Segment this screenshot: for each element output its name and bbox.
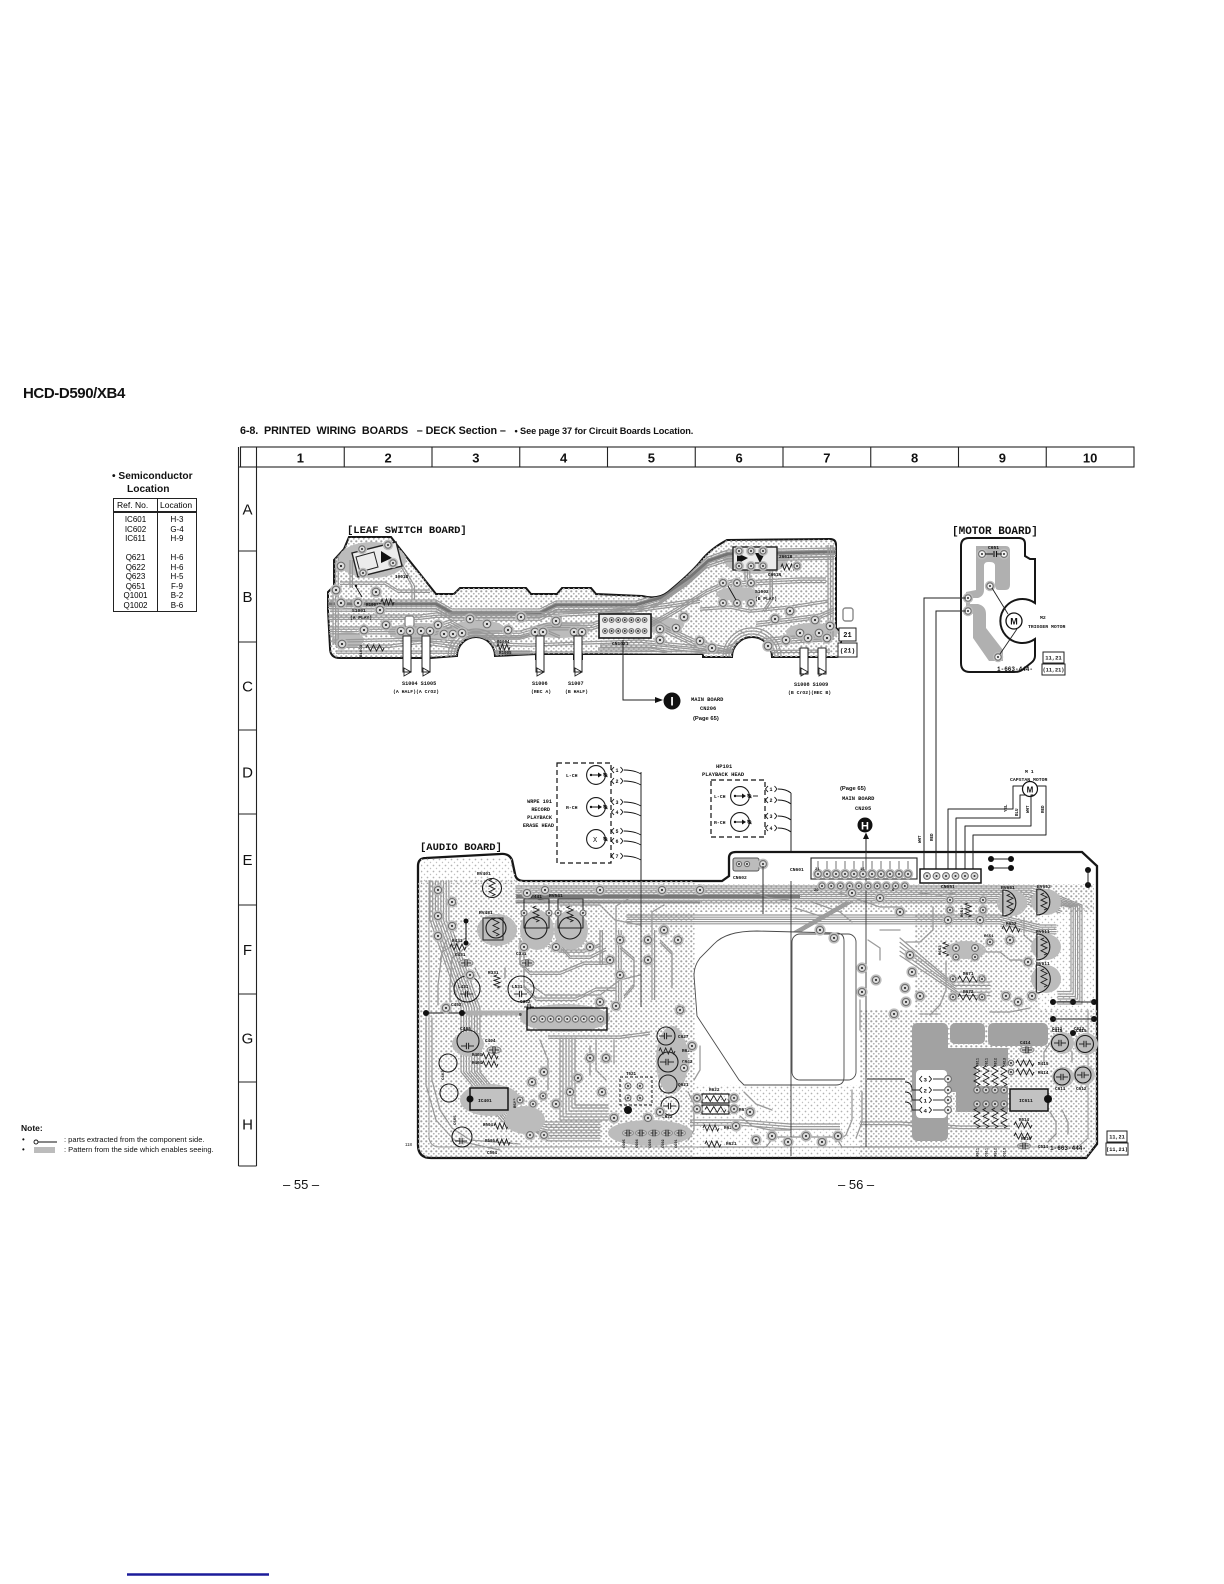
- svg-text:R504: R504: [483, 1124, 494, 1128]
- svg-text:8: 8: [911, 451, 918, 466]
- svg-text:RV541: RV541: [549, 893, 563, 899]
- svg-text:H: H: [861, 821, 869, 833]
- svg-text:T621: T621: [626, 1073, 637, 1077]
- svg-text:C415: C415: [1052, 1029, 1063, 1034]
- svg-text:11,21: 11,21: [1109, 1134, 1125, 1140]
- svg-text:C612: C612: [1076, 1087, 1087, 1092]
- svg-text:21: 21: [815, 868, 820, 872]
- svg-text:S1007: S1007: [568, 681, 584, 687]
- svg-text:M: M: [1010, 617, 1018, 627]
- svg-text:R622: R622: [709, 1088, 720, 1093]
- svg-text:CN651: CN651: [941, 884, 955, 890]
- svg-text:H: H: [242, 1117, 253, 1134]
- svg-text:G: G: [242, 1031, 254, 1048]
- svg-text:C404: C404: [485, 1039, 496, 1044]
- svg-text:(A PLAY): (A PLAY): [350, 615, 372, 621]
- svg-text:L431: L431: [458, 985, 469, 990]
- svg-text:R331: R331: [488, 971, 499, 976]
- svg-text:M2: M2: [1040, 615, 1046, 621]
- svg-text:C413: C413: [1004, 1058, 1008, 1067]
- svg-text:2: 2: [770, 798, 773, 804]
- svg-text:BLU: BLU: [1016, 808, 1020, 816]
- svg-text:1: 1: [297, 451, 304, 466]
- svg-text:R612: R612: [995, 1058, 999, 1067]
- svg-text:C603: C603: [649, 1139, 653, 1148]
- svg-text:HP101: HP101: [716, 764, 732, 770]
- svg-text:3: 3: [924, 1076, 928, 1083]
- svg-text:5: 5: [616, 829, 619, 835]
- svg-text:21: 21: [843, 632, 851, 640]
- svg-text:10: 10: [1083, 451, 1097, 466]
- svg-text:(B HALF): (B HALF): [565, 689, 588, 695]
- svg-text:M: M: [1027, 786, 1034, 795]
- svg-text:(Page 65): (Page 65): [840, 786, 866, 792]
- svg-text:C627: C627: [678, 1035, 689, 1040]
- svg-text:11,21: 11,21: [1045, 654, 1062, 661]
- svg-text:Q621: Q621: [678, 1083, 689, 1088]
- svg-text:A: A: [242, 502, 252, 519]
- svg-text:C504: C504: [487, 1152, 498, 1156]
- svg-text:RED: RED: [1042, 805, 1046, 813]
- svg-text:CN1021: CN1021: [612, 641, 629, 647]
- svg-text:R431: R431: [452, 939, 463, 944]
- svg-text:C611: C611: [986, 1058, 990, 1067]
- svg-text:(REC A): (REC A): [531, 689, 551, 695]
- svg-text:WHT: WHT: [1027, 805, 1031, 813]
- svg-text:S1008 S1009: S1008 S1009: [794, 682, 828, 688]
- svg-text:L-CH: L-CH: [714, 794, 726, 800]
- svg-text:1-663-444-: 1-663-444-: [1050, 1145, 1086, 1152]
- svg-text:9: 9: [519, 1012, 522, 1018]
- svg-text:2: 2: [924, 1087, 928, 1094]
- svg-text:C431: C431: [455, 953, 466, 958]
- svg-text:(11,21): (11,21): [1106, 1147, 1128, 1153]
- svg-text:R-CH: R-CH: [714, 820, 726, 826]
- svg-text:R621: R621: [726, 1142, 737, 1147]
- svg-text:C651: C651: [988, 545, 999, 551]
- svg-text:S1004 S1005: S1004 S1005: [402, 681, 436, 687]
- svg-text:[AUDIO BOARD]: [AUDIO BOARD]: [420, 842, 502, 854]
- svg-text:6: 6: [736, 451, 743, 466]
- svg-text:(A HALF)(A CrO2): (A HALF)(A CrO2): [393, 689, 439, 695]
- svg-text:WHT: WHT: [919, 835, 923, 843]
- svg-text:C514: C514: [1038, 1146, 1049, 1150]
- svg-text:I: I: [670, 695, 673, 709]
- svg-text:R1003: R1003: [360, 644, 364, 657]
- svg-text:R611: R611: [977, 1058, 981, 1067]
- svg-text:1: 1: [924, 1097, 928, 1104]
- svg-text:MAIN BOARD: MAIN BOARD: [691, 697, 724, 703]
- svg-text:F: F: [243, 942, 252, 959]
- svg-text:R403: R403: [472, 1054, 483, 1058]
- svg-text:3: 3: [770, 814, 773, 820]
- svg-text:C405: C405: [460, 1026, 471, 1032]
- svg-text:RV401: RV401: [477, 871, 491, 877]
- svg-text:C605: C605: [623, 1139, 627, 1148]
- svg-text:C403: C403: [442, 1070, 446, 1080]
- svg-text:C604: C604: [636, 1139, 640, 1148]
- svg-text:C414: C414: [1020, 1041, 1031, 1046]
- svg-text:C611: C611: [1055, 1087, 1066, 1092]
- svg-text:YEL: YEL: [1005, 804, 1009, 812]
- svg-text:CN205: CN205: [855, 806, 871, 812]
- svg-text:4: 4: [770, 826, 773, 832]
- svg-text:[MOTOR BOARD]: [MOTOR BOARD]: [952, 526, 1038, 538]
- svg-text:R1005: R1005: [499, 652, 512, 656]
- svg-text:D: D: [242, 765, 253, 782]
- svg-text:IC401: IC401: [478, 1098, 492, 1104]
- svg-text:C332: C332: [520, 1000, 531, 1005]
- svg-text:E: E: [242, 852, 252, 869]
- svg-text:R511: R511: [977, 1148, 981, 1157]
- svg-text:C602: C602: [662, 1139, 666, 1148]
- svg-text:RED: RED: [931, 833, 935, 841]
- svg-text:6: 6: [616, 839, 619, 845]
- svg-text:C331: C331: [516, 952, 527, 957]
- svg-text:S1002: S1002: [755, 589, 769, 595]
- svg-text:ERASE HEAD: ERASE HEAD: [523, 823, 554, 829]
- svg-text:15: 15: [860, 868, 865, 872]
- svg-text:IC611: IC611: [1019, 1098, 1033, 1104]
- svg-text:4: 4: [560, 451, 568, 466]
- svg-text:MAIN BOARD: MAIN BOARD: [842, 796, 875, 802]
- svg-text:C505: C505: [454, 1115, 458, 1125]
- svg-text:RECORD: RECORD: [531, 807, 550, 813]
- svg-text:1-663-444-: 1-663-444-: [997, 666, 1033, 673]
- svg-text:2: 2: [616, 779, 619, 785]
- svg-text:TRIGGER MOTOR: TRIGGER MOTOR: [1028, 624, 1066, 630]
- svg-text:(11,21): (11,21): [1043, 667, 1065, 673]
- svg-text:1: 1: [616, 768, 619, 774]
- svg-text:C601: C601: [675, 1139, 679, 1148]
- svg-text:R671: R671: [963, 972, 974, 977]
- svg-text:M 1: M 1: [1025, 769, 1034, 775]
- svg-text:L-CH: L-CH: [566, 773, 578, 779]
- svg-text:3: 3: [472, 451, 479, 466]
- svg-text:WRPE 101: WRPE 101: [527, 799, 552, 805]
- svg-text:4: 4: [924, 1107, 928, 1114]
- svg-text:PLAYBACK HEAD: PLAYBACK HEAD: [702, 772, 745, 778]
- svg-text:4: 4: [616, 810, 619, 816]
- svg-text:(21): (21): [840, 647, 856, 654]
- svg-text:(B CrO2)(REC B): (B CrO2)(REC B): [788, 690, 831, 696]
- svg-text:[LEAF SWITCH BOARD]: [LEAF SWITCH BOARD]: [347, 525, 467, 537]
- svg-text:(B PLAY): (B PLAY): [755, 596, 777, 602]
- svg-text:CN602: CN602: [733, 875, 747, 881]
- svg-text:5: 5: [648, 451, 655, 466]
- svg-text:R512: R512: [995, 1148, 999, 1157]
- svg-text:L531: L531: [512, 985, 523, 990]
- svg-text:R404: R404: [472, 1062, 483, 1066]
- svg-text:20: 20: [814, 889, 819, 893]
- svg-text:PLAYBACK: PLAYBACK: [527, 815, 553, 821]
- svg-text:R505: R505: [485, 1140, 496, 1144]
- svg-text:R415: R415: [1038, 1062, 1049, 1067]
- svg-text:S1001: S1001: [352, 608, 366, 614]
- svg-text:7: 7: [823, 451, 830, 466]
- svg-text:9: 9: [999, 451, 1006, 466]
- svg-text:1: 1: [770, 787, 773, 793]
- svg-text:1001B: 1001B: [395, 575, 409, 580]
- svg-text:C513: C513: [1004, 1148, 1008, 1157]
- svg-text:CN206: CN206: [700, 706, 716, 712]
- svg-text:C452: C452: [451, 1003, 462, 1008]
- svg-text:C511: C511: [986, 1148, 990, 1157]
- svg-text:7: 7: [616, 854, 619, 860]
- svg-text:B: B: [242, 589, 252, 606]
- svg-text:R672: R672: [963, 990, 974, 995]
- svg-text:R651: R651: [961, 907, 965, 917]
- svg-text:S1006: S1006: [532, 681, 548, 687]
- svg-text:RV481: RV481: [479, 910, 493, 916]
- svg-text:R653: R653: [939, 945, 943, 955]
- svg-text:2661B: 2661B: [779, 555, 793, 560]
- svg-text:118: 118: [405, 1142, 413, 1147]
- svg-text:R414: R414: [1038, 1071, 1049, 1076]
- svg-text:R1004: R1004: [497, 641, 510, 645]
- svg-text:CN601: CN601: [790, 867, 804, 873]
- svg-text:2: 2: [385, 451, 392, 466]
- svg-text:C661N: C661N: [768, 573, 782, 578]
- svg-text:3: 3: [616, 800, 619, 806]
- svg-text:(Page 65): (Page 65): [693, 716, 719, 722]
- svg-text:C: C: [242, 679, 253, 696]
- svg-text:C615: C615: [1076, 1029, 1087, 1034]
- svg-text:R-CH: R-CH: [566, 805, 578, 811]
